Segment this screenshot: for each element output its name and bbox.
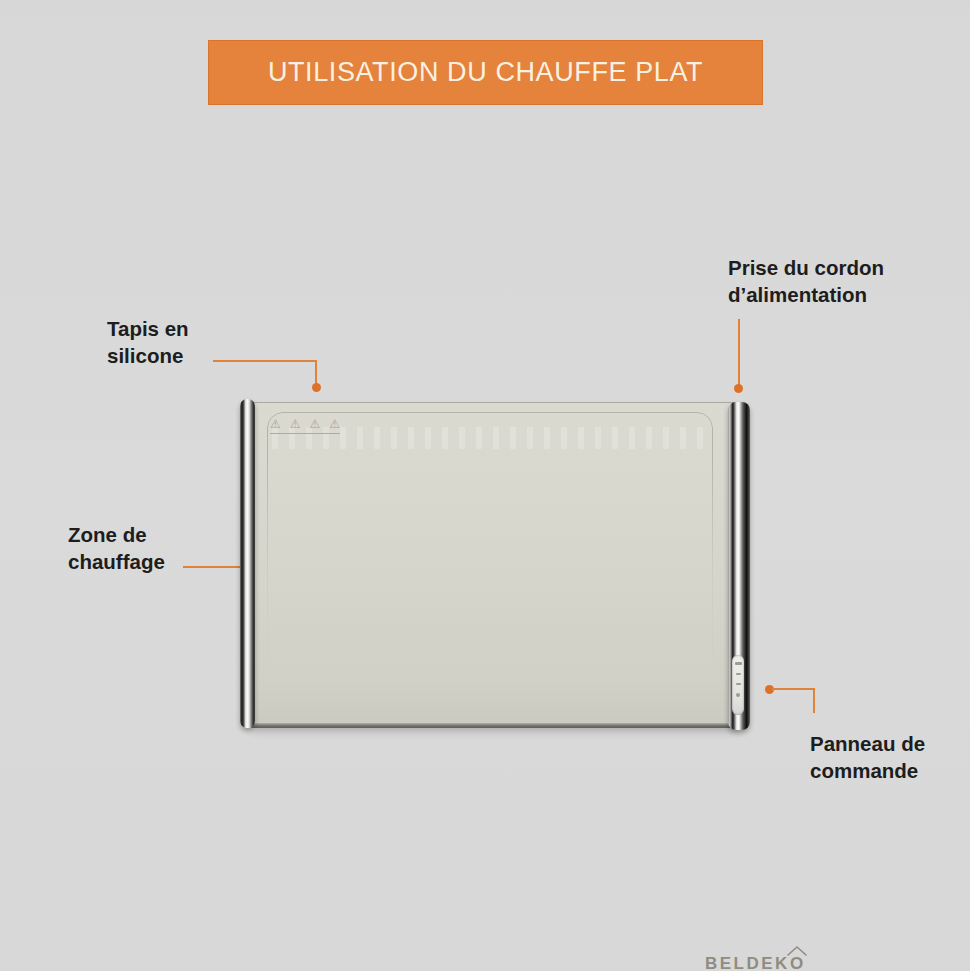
label-line-1: Zone de — [68, 521, 165, 548]
control-panel-indicator — [736, 673, 741, 675]
warning-icon: ⚠ — [329, 417, 340, 431]
connector-silicone-mat-vertical — [315, 360, 317, 384]
brand-logo-text: BELDEK — [705, 954, 790, 971]
control-panel-button — [735, 662, 742, 665]
connector-silicone-mat-dot — [312, 383, 321, 392]
connector-power-cord-dot — [734, 384, 743, 393]
silicone-mat-outline — [267, 412, 713, 702]
brand-logo: BELDEKO — [705, 954, 806, 971]
control-panel-indicator — [736, 683, 741, 685]
control-panel-indicator — [736, 693, 740, 697]
control-panel-strip — [732, 655, 744, 715]
warning-icon: ⚠ — [290, 417, 301, 431]
label-line-2: d’alimentation — [728, 281, 884, 308]
label-line-1: Tapis en — [107, 315, 189, 342]
plate-warmer-body: ⚠ ⚠ ⚠ ⚠ BELDEKO — [250, 402, 740, 728]
logo-roof-icon — [787, 946, 807, 956]
label-heating-zone: Zone de chauffage — [68, 521, 165, 575]
label-line-2: chauffage — [68, 548, 165, 575]
device-bottom-edge — [250, 723, 740, 728]
safety-icons-row: ⚠ ⚠ ⚠ ⚠ — [270, 417, 340, 434]
warning-icon: ⚠ — [270, 417, 281, 431]
connector-power-cord-vertical — [738, 319, 740, 385]
label-line-1: Panneau de — [810, 730, 925, 757]
connector-silicone-mat-horizontal — [213, 360, 317, 362]
connector-control-panel-vertical — [813, 688, 815, 713]
right-handle — [728, 402, 750, 730]
label-silicone-mat: Tapis en silicone — [107, 315, 189, 369]
warning-icon: ⚠ — [310, 417, 321, 431]
page-title: UTILISATION DU CHAUFFE PLAT — [268, 57, 703, 88]
left-handle — [240, 399, 255, 728]
brand-logo-last-letter: O — [790, 954, 806, 971]
label-line-2: silicone — [107, 342, 189, 369]
title-banner: UTILISATION DU CHAUFFE PLAT — [208, 40, 763, 105]
label-control-panel: Panneau de commande — [810, 730, 925, 784]
label-line-1: Prise du cordon — [728, 254, 884, 281]
label-line-2: commande — [810, 757, 925, 784]
connector-control-panel-horizontal — [772, 688, 815, 690]
label-power-cord: Prise du cordon d’alimentation — [728, 254, 884, 308]
infographic-canvas: UTILISATION DU CHAUFFE PLAT Tapis en sil… — [0, 0, 970, 971]
